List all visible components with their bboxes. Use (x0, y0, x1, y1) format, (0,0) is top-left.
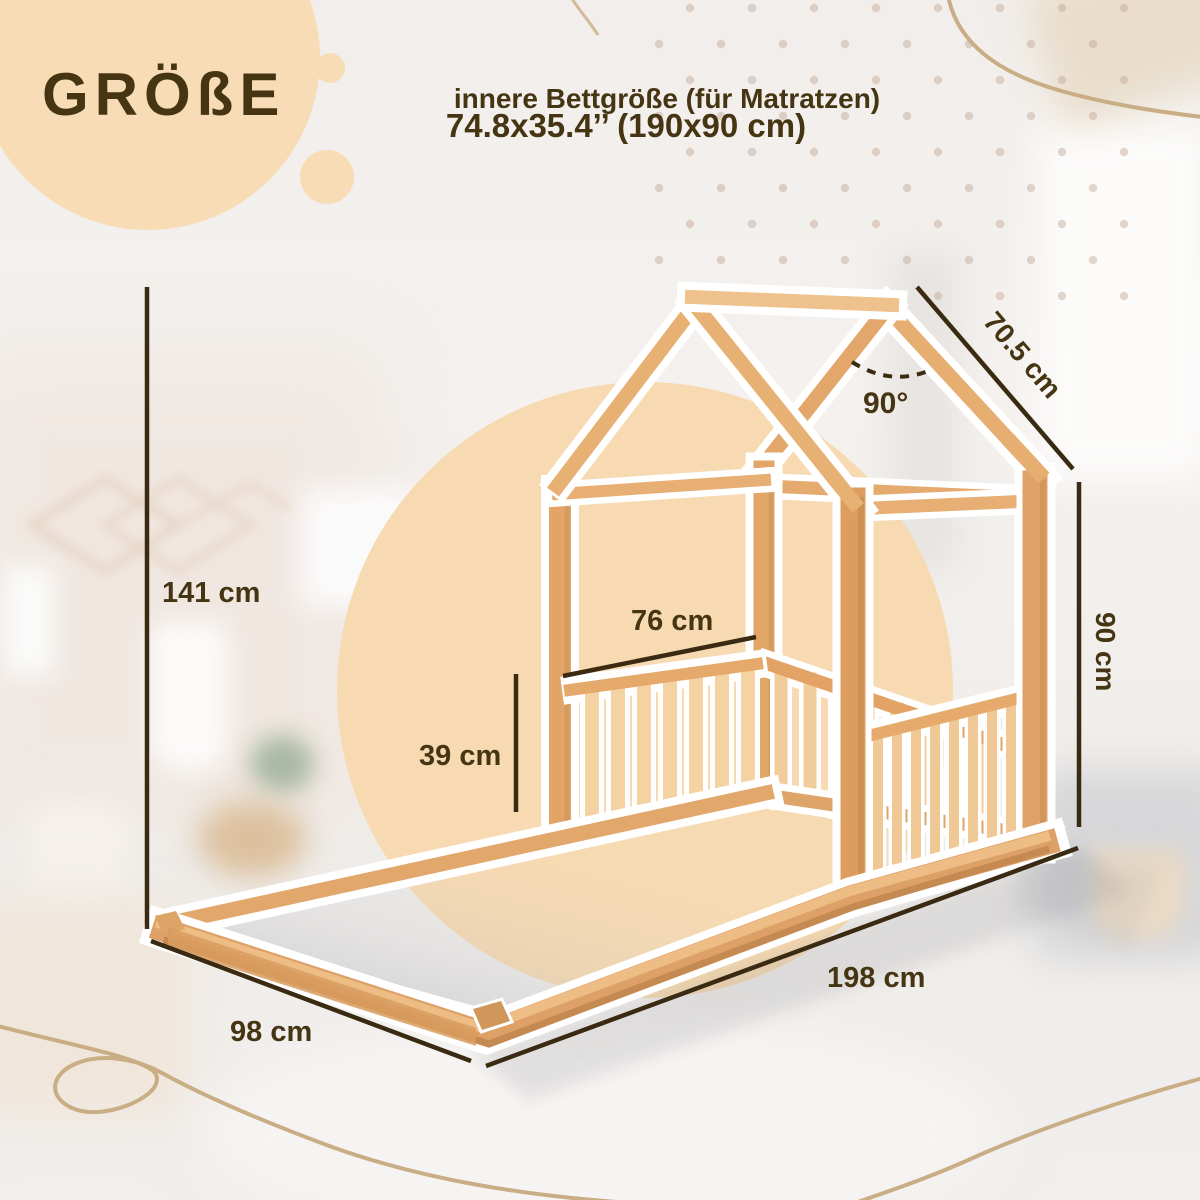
svg-text:98 cm: 98 cm (230, 1016, 312, 1048)
svg-text:GRÖßE: GRÖßE (42, 61, 285, 128)
svg-text:76 cm: 76 cm (631, 605, 713, 637)
svg-text:39 cm: 39 cm (419, 740, 501, 772)
svg-text:141 cm: 141 cm (162, 577, 260, 609)
svg-text:74.8x35.4’’ (190x90 cm): 74.8x35.4’’ (190x90 cm) (446, 107, 806, 144)
svg-text:198 cm: 198 cm (827, 962, 925, 994)
svg-text:90°: 90° (863, 387, 908, 420)
svg-text:90 cm: 90 cm (1090, 612, 1121, 691)
